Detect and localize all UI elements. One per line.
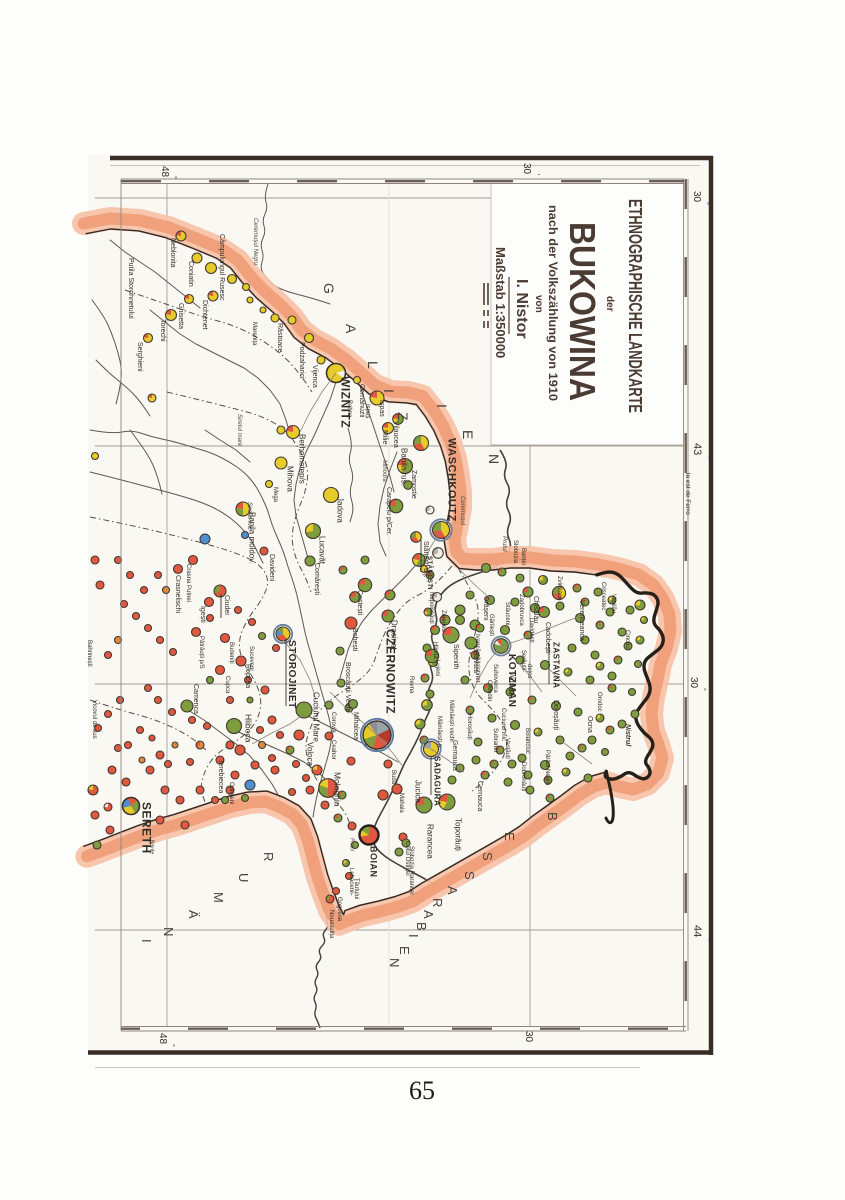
svg-text:der: der [604, 296, 615, 312]
svg-text:Camenca: Camenca [192, 684, 199, 714]
svg-text:Nistrul: Nistrul [624, 724, 631, 747]
svg-text:Slobozia Rarancei: Slobozia Rarancei [408, 846, 414, 895]
svg-text:Ciudei: Ciudei [223, 595, 230, 615]
svg-text:R: R [261, 852, 276, 861]
svg-text:Cuciurul Mare: Cuciurul Mare [312, 692, 321, 742]
svg-text:Câmpulungul Rusesc: Câmpulungul Rusesc [218, 234, 225, 301]
svg-text:BOIAN: BOIAN [368, 846, 378, 878]
svg-text:WIZNITZ: WIZNITZ [338, 376, 352, 428]
svg-text:Davidești: Davidești [528, 618, 534, 643]
svg-text:Suhoverca: Suhoverca [492, 664, 498, 693]
svg-text:Serghieni: Serghieni [136, 342, 143, 372]
svg-text:I: I [406, 934, 421, 938]
svg-text:A: A [343, 324, 359, 334]
svg-text:Ghisetta: Ghisetta [177, 303, 184, 329]
svg-text:°: ° [170, 176, 178, 179]
svg-text:44: 44 [691, 925, 703, 937]
svg-text:Horoșăuți: Horoșăuți [466, 714, 472, 740]
svg-text:Cadobești: Cadobești [544, 622, 551, 654]
svg-text:Dichtenet: Dichtenet [201, 300, 208, 330]
svg-text:von: von [533, 295, 544, 313]
svg-text:Cernăhuzii: Cernăhuzii [358, 384, 365, 418]
svg-text:Ispas: Ispas [378, 400, 385, 417]
svg-text:Ispes: Ispes [364, 404, 370, 418]
svg-text:Nouasulița: Nouasulița [328, 910, 334, 939]
svg-text:la est de Ferro: la est de Ferro [684, 473, 691, 515]
svg-text:43: 43 [691, 443, 703, 455]
svg-text:Marenița: Marenița [251, 322, 257, 346]
svg-text:Oprișeni: Oprișeni [228, 782, 234, 804]
svg-text:Lujeni: Lujeni [434, 660, 440, 676]
svg-text:Siretul mare: Siretul mare [236, 414, 242, 447]
svg-text:Pârâul Negru: Pârâul Negru [544, 750, 550, 785]
svg-text:Mămăești vechi: Mămăești vechi [448, 700, 454, 742]
svg-text:R: R [430, 898, 445, 907]
svg-text:Crasnelischi: Crasnelischi [174, 575, 181, 614]
svg-text:A: A [445, 886, 460, 895]
svg-text:Verenceanca: Verenceanca [578, 600, 585, 641]
svg-text:Orășeni: Orășeni [482, 596, 489, 621]
svg-text:Mihalcea: Mihalcea [352, 712, 359, 740]
svg-text:M: M [211, 892, 226, 903]
svg-text:Gernauca: Gernauca [451, 740, 458, 771]
svg-text:Crisceatec: Crisceatec [600, 582, 606, 610]
svg-text:Sipenith: Sipenith [452, 644, 459, 669]
svg-text:Cuciurul mic: Cuciurul mic [500, 708, 506, 741]
svg-text:Hliboca: Hliboca [243, 714, 253, 743]
svg-text:Orodoc: Orodoc [596, 692, 602, 712]
svg-text:B: B [414, 922, 429, 931]
svg-text:Vilaucea: Vilaucea [392, 421, 399, 448]
svg-text:30: 30 [523, 1031, 534, 1043]
svg-text:ZASTAVNA: ZASTAVNA [552, 642, 561, 688]
svg-text:Carapciu p/Cer.: Carapciu p/Cer. [385, 487, 392, 536]
svg-text:Budeniți: Budeniți [228, 642, 234, 664]
svg-text:Neblonita: Neblonita [169, 238, 176, 268]
svg-text:Gărilești: Gărilești [488, 614, 494, 636]
svg-text:Mămăești n.: Mămăești n. [436, 716, 442, 749]
svg-text:Lașchiuca: Lașchiuca [472, 646, 478, 674]
svg-text:Stăuceni: Stăuceni [504, 602, 510, 625]
svg-text:Prutul: Prutul [349, 838, 355, 852]
svg-text:CZERNOWITZ: CZERNOWITZ [383, 629, 397, 714]
svg-text:Igești: Igești [199, 606, 206, 623]
svg-text:I: I [381, 389, 397, 393]
svg-text:Buda: Buda [390, 770, 396, 785]
svg-text:Vijenca: Vijenca [311, 365, 318, 388]
svg-text:Berhometep/s: Berhometep/s [298, 434, 307, 484]
svg-text:N: N [161, 927, 176, 936]
svg-text:Toporăuți: Toporăuți [454, 818, 463, 851]
svg-text:N: N [486, 454, 502, 464]
svg-text:Davideni: Davideni [268, 554, 275, 582]
svg-text:STOROJINET: STOROJINET [286, 640, 297, 709]
svg-text:Maßstab 1:350000: Maßstab 1:350000 [493, 247, 508, 358]
svg-text:Jucica: Jucica [414, 780, 423, 803]
svg-text:Mahala: Mahala [398, 793, 404, 813]
svg-text:Tăutului: Tăutului [353, 878, 359, 899]
svg-text:Șerăuții-: Șerăuții- [520, 650, 526, 672]
svg-text:Zeleneu: Zeleneu [440, 610, 446, 632]
svg-text:nach der Volkszählung von 1910: nach der Volkszählung von 1910 [546, 205, 560, 401]
svg-text:Broscăuții Vechi: Broscăuții Vechi [344, 662, 351, 712]
svg-text:Ceahor: Ceahor [330, 740, 336, 760]
svg-text:I: I [434, 404, 450, 408]
svg-text:I. Nistor: I. Nistor [513, 279, 530, 339]
svg-text:Mihova: Mihova [286, 466, 295, 492]
svg-text:KOTZMAN: KOTZMAN [506, 654, 517, 708]
svg-text:Siretul mic: Siretul mic [246, 502, 252, 530]
svg-text:Zvineace: Zvineace [556, 576, 562, 601]
svg-text:Comărești: Comărești [313, 563, 320, 595]
svg-text:Torechi: Torechi [159, 319, 166, 342]
svg-text:65: 65 [409, 1076, 435, 1105]
svg-text:Jadova: Jadova [336, 497, 345, 523]
svg-text:Bahrinești: Bahrinești [86, 640, 92, 667]
svg-text:Revna: Revna [408, 676, 414, 694]
svg-text:48: 48 [157, 1033, 168, 1045]
svg-text:Rarancea: Rarancea [426, 824, 435, 859]
svg-text:B: B [545, 812, 560, 821]
svg-text:Doroșăuți: Doroșăuți [552, 700, 559, 730]
svg-text:Mologhia: Mologhia [332, 772, 342, 807]
svg-text:Zamostie: Zamostie [410, 470, 417, 499]
svg-text:Șubranet: Șubranet [492, 728, 498, 753]
svg-text:Dobronăuți: Dobronăuți [520, 762, 526, 791]
svg-text:S: S [480, 852, 495, 861]
svg-text:SADAGURA: SADAGURA [433, 756, 442, 806]
svg-text:Ceremușul Negru: Ceremușul Negru [252, 218, 258, 266]
svg-text:Cernauca: Cernauca [476, 781, 483, 811]
svg-text:WASCHKOUTZ: WASCHKOUTZ [446, 438, 458, 522]
svg-text:Lucavăț: Lucavăț [318, 536, 327, 565]
svg-text:Bobești: Bobești [351, 628, 358, 652]
svg-text:Ä: Ä [186, 910, 201, 919]
svg-text:ETHNOGRAPHISCHE LANDKARTE: ETHNOGRAPHISCHE LANDKARTE [625, 199, 645, 413]
svg-text:E: E [460, 430, 476, 439]
svg-text:Ceremușul: Ceremușul [459, 496, 465, 526]
svg-text:Zadobruvca: Zadobruvca [518, 594, 524, 626]
svg-text:Hlinița: Hlinița [432, 642, 438, 659]
svg-text:30: 30 [688, 677, 699, 689]
svg-text:Voloca: Voloca [306, 742, 315, 767]
svg-text:30: 30 [691, 191, 702, 203]
svg-text:Crasna Putnei: Crasna Putnei [185, 564, 191, 602]
svg-text:A: A [421, 910, 436, 919]
svg-text:Nepolоcăuți: Nepolоcăuți [428, 592, 434, 624]
svg-text:S: S [462, 871, 477, 880]
svg-text:Răstoace: Răstoace [276, 323, 283, 353]
svg-text:Z: Z [395, 412, 411, 421]
svg-text:Cincău: Cincău [624, 630, 630, 649]
svg-text:N: N [387, 958, 402, 967]
svg-text:BUKOWINA: BUKOWINA [562, 222, 603, 401]
svg-text:L: L [365, 361, 381, 369]
svg-text:G: G [321, 283, 337, 294]
svg-text:Banței: Banței [520, 548, 526, 565]
svg-text:Banila rus.: Banila rus. [400, 448, 409, 486]
svg-text:Vaslăuți: Vaslăuți [504, 738, 510, 759]
svg-text:U: U [236, 873, 251, 882]
svg-text:Coniatin: Coniatin [187, 261, 194, 287]
svg-text:I: I [139, 939, 154, 943]
svg-text:Ocna: Ocna [586, 716, 593, 733]
svg-text:Boianciuc: Boianciuc [524, 728, 530, 754]
svg-text:Suceveni: Suceveni [248, 646, 254, 671]
svg-text:°: ° [703, 938, 712, 941]
svg-text:E: E [502, 832, 517, 841]
svg-text:Mega: Mega [272, 487, 278, 503]
svg-text:30: 30 [521, 163, 532, 175]
svg-text:Cupca: Cupca [224, 676, 230, 694]
svg-text:E: E [397, 946, 412, 955]
svg-text:Gogolina: Gogolina [336, 897, 342, 922]
svg-text:Terebiecea: Terebiecea [217, 759, 224, 793]
svg-text:Mihodra: Mihodra [381, 460, 387, 482]
svg-text:Clivodin: Clivodin [486, 680, 492, 701]
svg-text:Vasilău: Vasilău [610, 594, 616, 613]
svg-text:°: ° [703, 456, 712, 459]
svg-text:SERETH: SERETH [139, 802, 153, 854]
svg-text:Vicovul de sus: Vicovul de sus [91, 700, 97, 739]
svg-text:48: 48 [159, 166, 170, 178]
svg-text:-dejos: -dejos [526, 662, 532, 678]
svg-text:Corovia: Corovia [330, 712, 336, 733]
svg-text:°: ° [699, 688, 707, 691]
svg-text:Prutul: Prutul [501, 536, 507, 552]
svg-text:Pătrăuții p/S: Pătrăuții p/S [198, 636, 204, 669]
svg-text:Milie: Milie [381, 430, 388, 444]
svg-text:Costești: Costești [356, 590, 363, 616]
svg-text:Slobozia: Slobozia [512, 540, 518, 564]
svg-text:°: ° [168, 1044, 176, 1047]
svg-text:°: ° [702, 202, 710, 205]
svg-text:Podzaharici: Podzaharici [298, 342, 305, 379]
svg-text:STĂNEȘTI: STĂNEȘTI [426, 556, 433, 590]
svg-text:Putila Storohnetului: Putila Storohnetului [127, 258, 134, 319]
